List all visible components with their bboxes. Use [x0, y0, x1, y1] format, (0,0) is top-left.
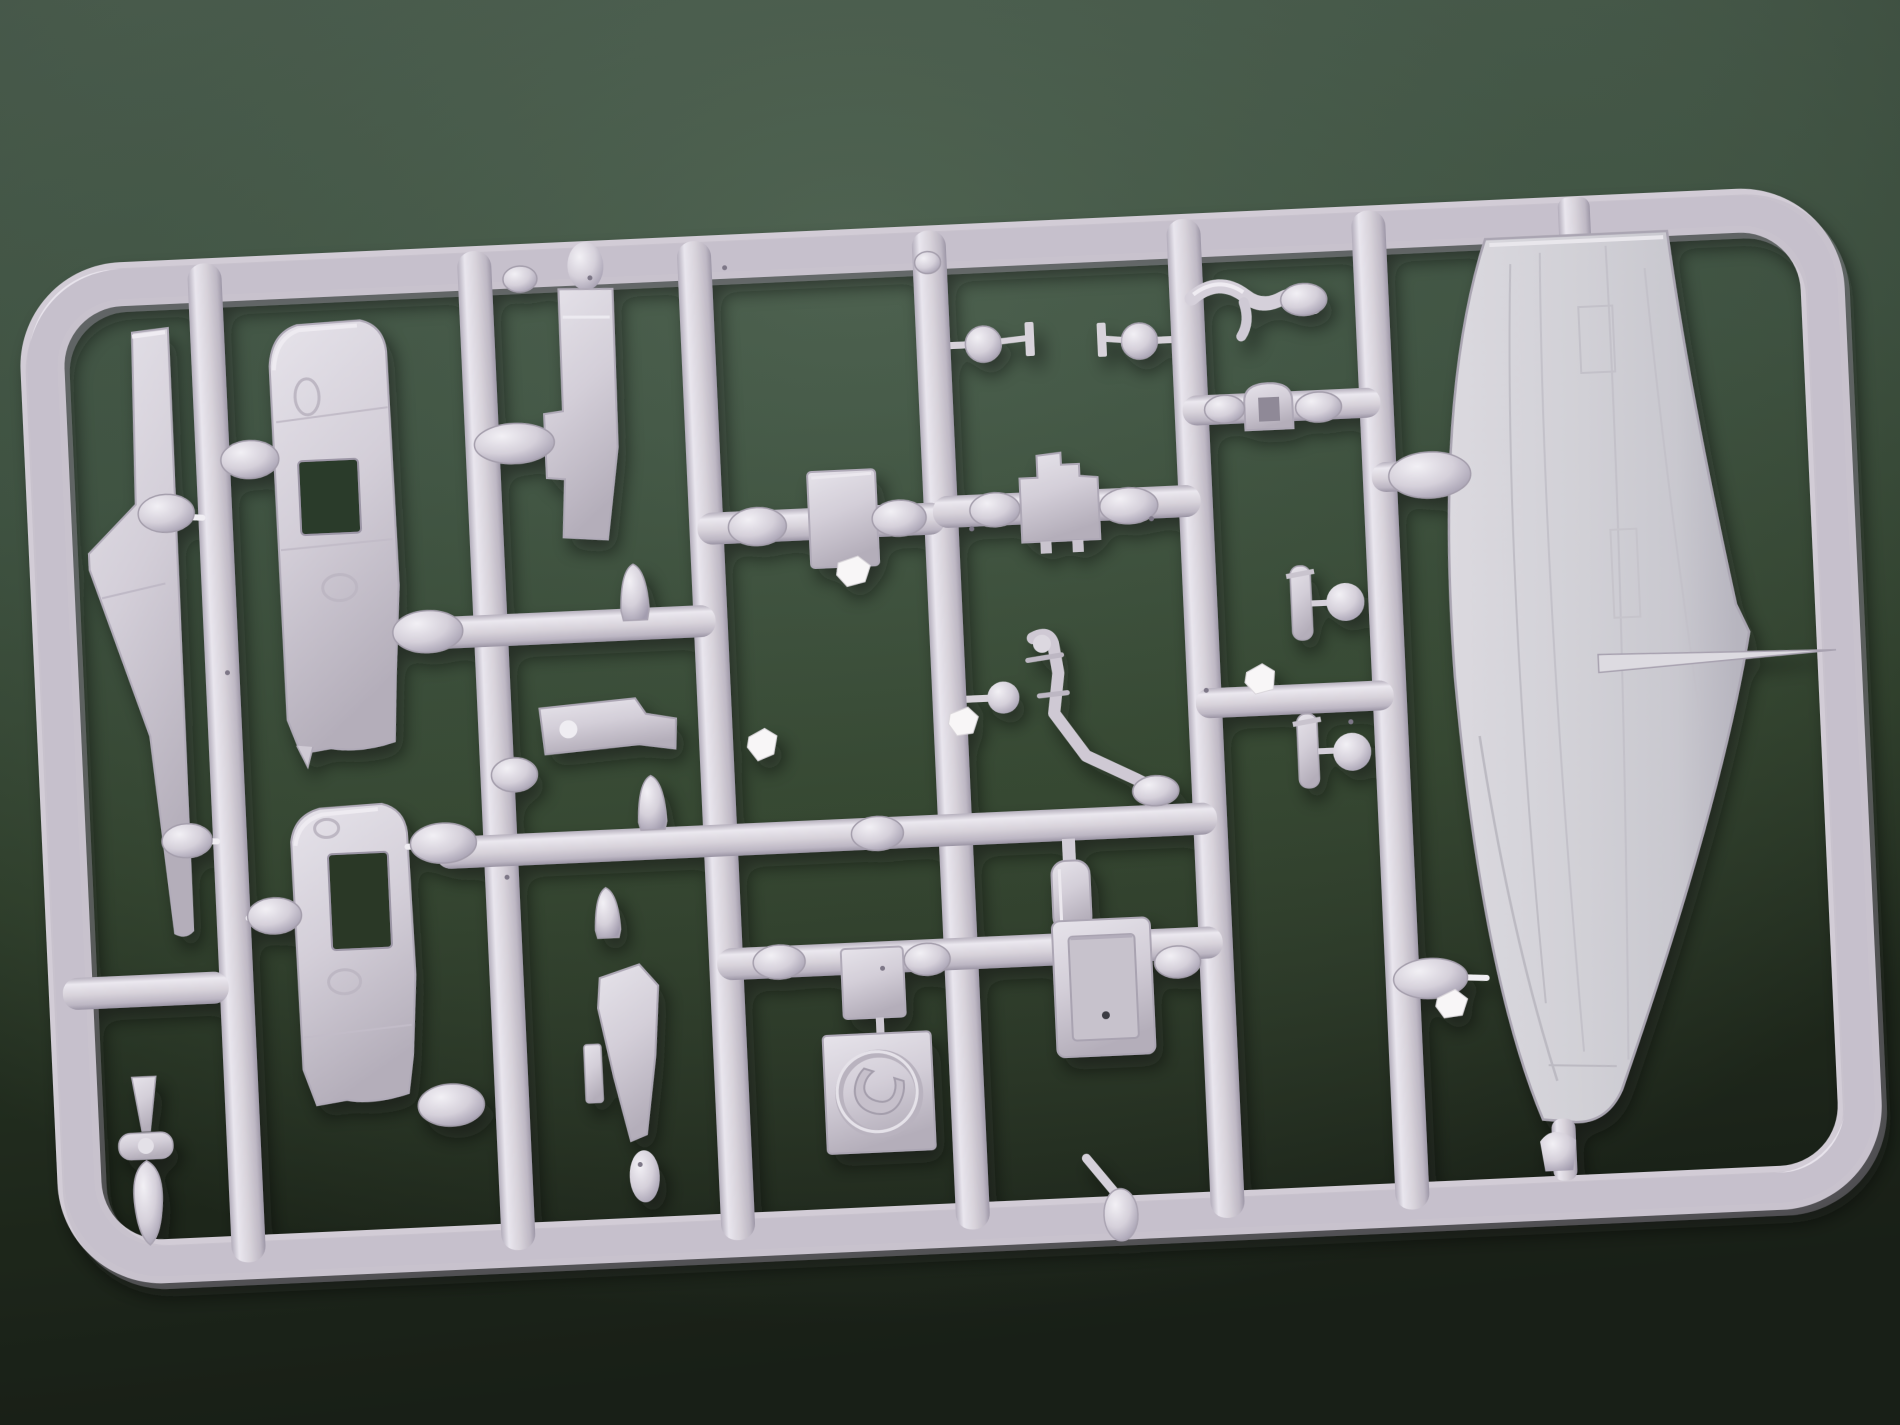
fuselage-half-upper-part [268, 319, 407, 768]
fuselage-lower-window-cutout [328, 852, 392, 951]
photo-of-model-sprue: C [0, 0, 1900, 1425]
small-square-panel-part [841, 946, 906, 1019]
marking-plate-part: C [822, 1015, 936, 1154]
hatch-frame-part [1052, 917, 1156, 1057]
fuselage-half-lower-part [290, 803, 421, 1106]
square-panel-part [807, 469, 879, 568]
fuselage-upper-window-cutout [298, 459, 361, 536]
engine-cowl-part [1243, 382, 1293, 430]
